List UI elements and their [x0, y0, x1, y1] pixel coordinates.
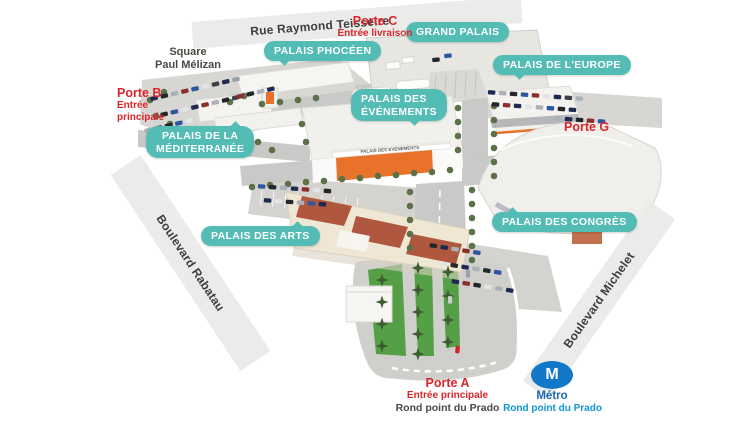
gate-detail: Entrée livraison [327, 28, 423, 40]
label-text: PALAIS DES CONGRÈS [502, 216, 627, 228]
gate-porte-b: Porte B Entrée principale [117, 86, 164, 124]
gate-detail: Entrée principale [390, 390, 505, 402]
label-text-line1: PALAIS DES [361, 93, 437, 106]
label-palais-europe: PALAIS DE L'EUROPE [493, 55, 631, 75]
label-palais-arts: PALAIS DES ARTS [201, 226, 320, 246]
metro-icon: M [531, 361, 573, 389]
gate-detail-line2: principale [117, 112, 164, 124]
label-palais-mediterranee: PALAIS DE LA MÉDITERRANÉE [146, 126, 254, 158]
metro-station: Rond point du Prado [495, 403, 610, 414]
gate-porte-a: Porte A Entrée principale Rond point du … [390, 376, 505, 415]
label-text-line1: PALAIS DE LA [156, 130, 244, 143]
gate-name: Porte B [117, 86, 164, 100]
landmark-square-paul-melizan: Square Paul Mélizan [143, 46, 233, 72]
gate-name: Porte C [327, 14, 423, 28]
gate-location: Rond point du Prado [390, 402, 505, 415]
gate-detail-line1: Entrée [117, 100, 164, 112]
gate-porte-c: Porte C Entrée livraison [327, 14, 423, 40]
metro-symbol: M [545, 366, 558, 384]
metro-name: Métro [522, 390, 582, 402]
map-render: PALAIS DES EVENEMENTS [0, 0, 748, 421]
label-text: GRAND PALAIS [416, 26, 499, 38]
label-text-line2: MÉDITERRANÉE [156, 143, 244, 156]
landmark-line2: Paul Mélizan [143, 59, 233, 72]
site-map: PALAIS DES EVENEMENTS [0, 0, 748, 421]
label-text: PALAIS PHOCÉEN [274, 45, 371, 57]
label-text: PALAIS DE L'EUROPE [503, 59, 621, 71]
gate-porte-g: Porte G [564, 120, 609, 134]
label-text: PALAIS DES ARTS [211, 230, 310, 242]
label-text-line2: ÉVÉNEMENTS [361, 106, 437, 119]
label-palais-congres: PALAIS DES CONGRÈS [492, 212, 637, 232]
gate-name: Porte A [390, 376, 505, 390]
label-palais-phoceen: PALAIS PHOCÉEN [264, 41, 381, 61]
label-palais-evenements: PALAIS DES ÉVÉNEMENTS [351, 89, 447, 121]
building-annex [346, 286, 392, 322]
landmark-line1: Square [143, 46, 233, 59]
gate-name: Porte G [564, 120, 609, 134]
